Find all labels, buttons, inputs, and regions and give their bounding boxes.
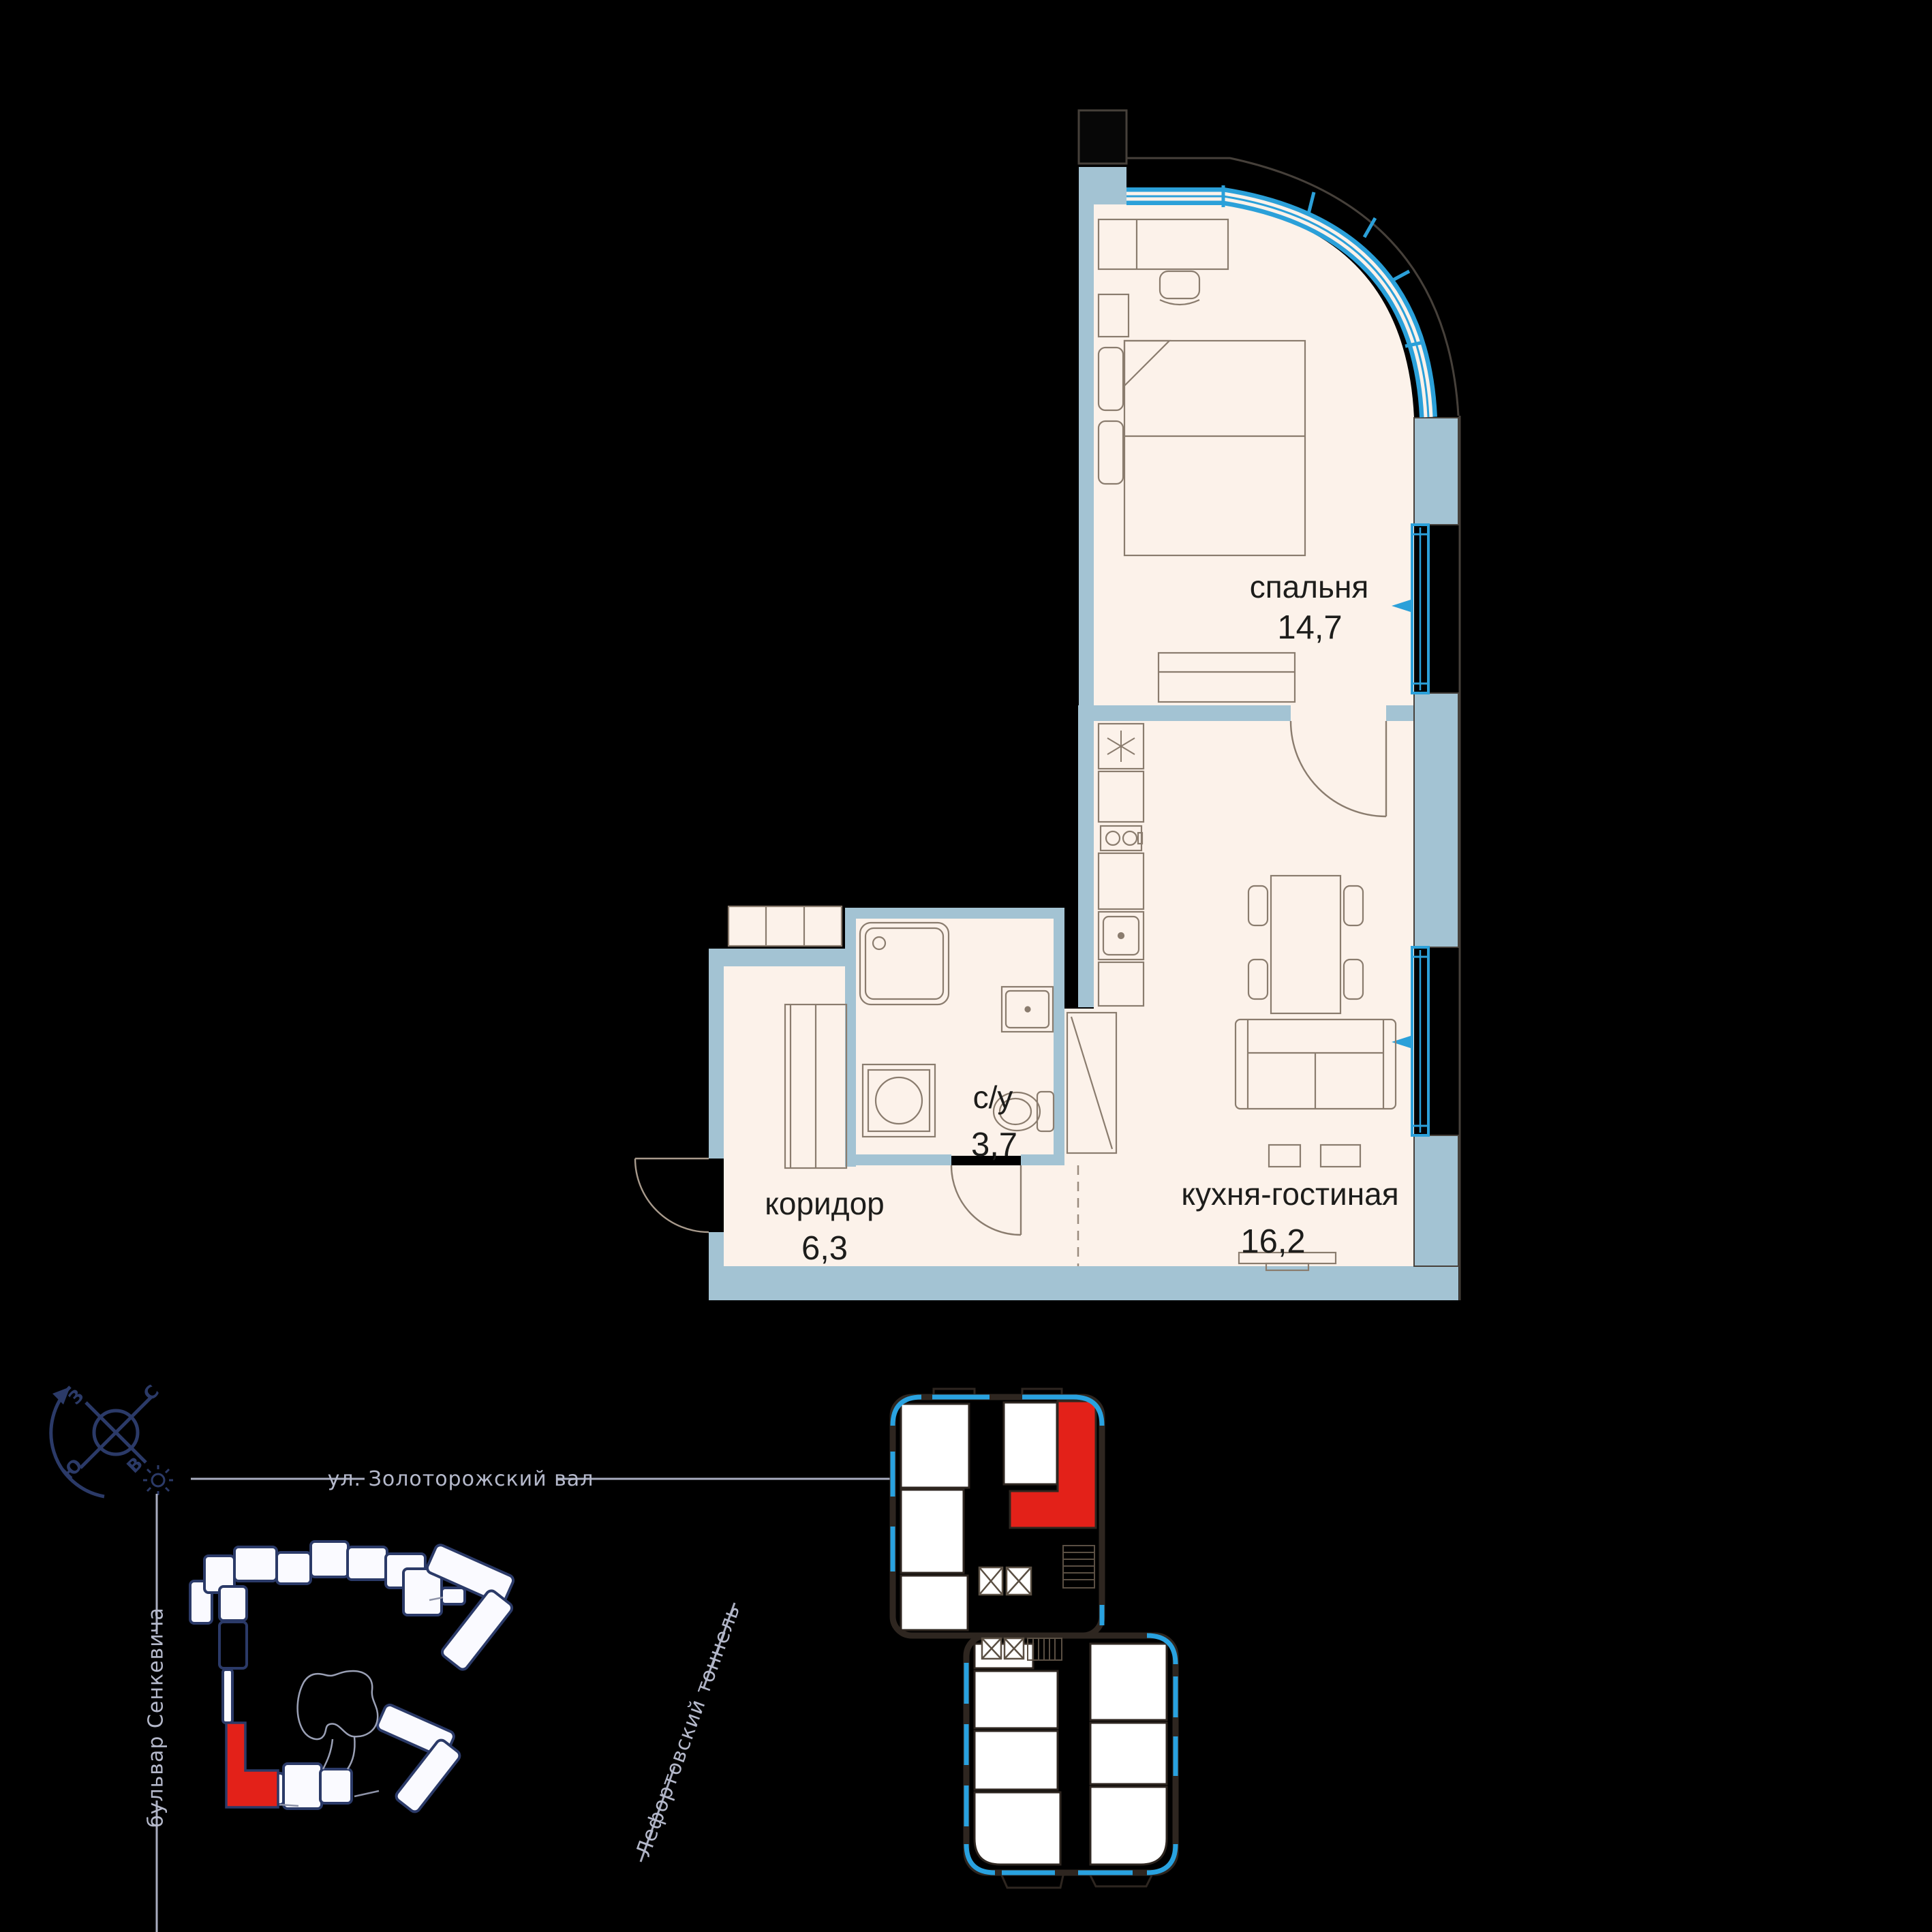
balcony-outlines bbox=[1002, 1875, 1152, 1888]
street-lines bbox=[157, 1479, 1009, 1932]
street-label-diagonal: Лефортовский тоннель bbox=[632, 1601, 746, 1860]
floor-plate-upper bbox=[893, 1389, 1102, 1636]
kitchen-living-area-value: 16,2 bbox=[1240, 1223, 1305, 1260]
street-label-left: бульвар Сенкевича bbox=[144, 1607, 168, 1828]
street-label-top: ул. Золоторожский вал bbox=[328, 1467, 594, 1491]
compass-north: С bbox=[140, 1381, 164, 1405]
floorplan-canvas: спальня 14,7 с/у 3,7 коридор 6,3 кухня-г… bbox=[0, 0, 1932, 1932]
shaft-box bbox=[1079, 110, 1126, 164]
shelf-unit bbox=[729, 906, 842, 946]
courtyard-outline bbox=[298, 1671, 378, 1769]
bedroom-kitchen-interior bbox=[1094, 203, 1414, 1266]
site-map: С З Ю В ул. Золоторожский вал бульвар Се… bbox=[51, 1381, 1009, 1932]
entry-door bbox=[635, 1159, 709, 1232]
highlighted-building bbox=[226, 1723, 278, 1807]
niche-interior bbox=[1064, 1009, 1094, 1165]
bathroom-area-value: 3,7 bbox=[971, 1126, 1017, 1163]
bedroom-area-value: 14,7 bbox=[1277, 609, 1342, 646]
corridor-area-value: 6,3 bbox=[801, 1230, 848, 1267]
kitchen-living-label: кухня-гостиная bbox=[1181, 1176, 1398, 1212]
floorplan-svg: спальня 14,7 с/у 3,7 коридор 6,3 кухня-г… bbox=[0, 0, 1932, 1932]
floor-plates bbox=[893, 1389, 1176, 1888]
corridor-label: коридор bbox=[765, 1186, 885, 1221]
floor-plate-lower bbox=[966, 1636, 1176, 1888]
sun-icon bbox=[143, 1465, 173, 1495]
bathroom-interior bbox=[855, 917, 1055, 1156]
bedroom-label: спальня bbox=[1250, 569, 1369, 604]
compass-south: Ю bbox=[58, 1455, 87, 1484]
compass-east: В bbox=[123, 1454, 147, 1477]
bathroom-label: с/у bbox=[973, 1079, 1013, 1115]
apartment-plan: спальня 14,7 с/у 3,7 коридор 6,3 кухня-г… bbox=[635, 110, 1460, 1300]
